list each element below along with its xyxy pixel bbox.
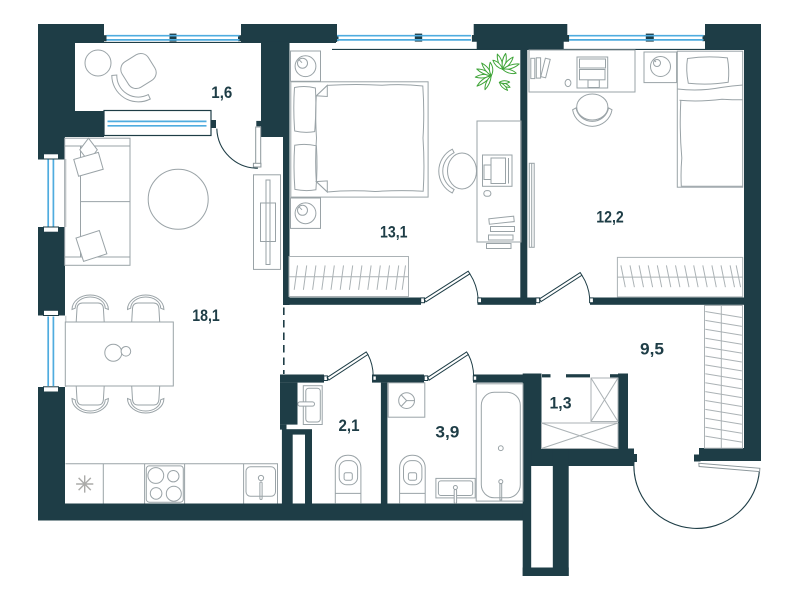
svg-text:12,2: 12,2 [596, 208, 624, 227]
svg-text:13,1: 13,1 [380, 223, 408, 242]
svg-text:2,1: 2,1 [339, 416, 360, 435]
svg-text:18,1: 18,1 [192, 306, 220, 325]
svg-text:1,6: 1,6 [211, 83, 232, 102]
svg-text:3,9: 3,9 [435, 423, 459, 442]
svg-text:9,5: 9,5 [640, 339, 664, 358]
svg-text:1,3: 1,3 [550, 394, 572, 413]
